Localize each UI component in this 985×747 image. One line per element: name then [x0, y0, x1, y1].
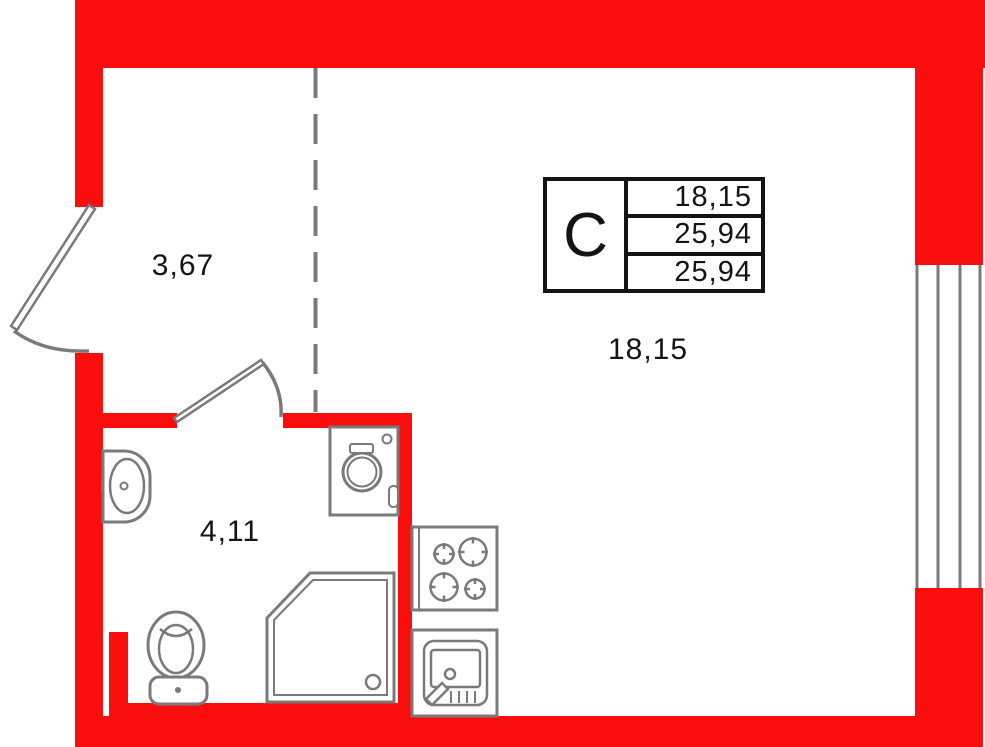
stamp-living-area: 18,15: [628, 181, 761, 218]
room-label-hallway: 3,67: [152, 249, 214, 283]
stamp-section-letter: C: [547, 181, 628, 289]
floor-plan: 3,67 18,15 4,11 C 18,15 25,94 25,94: [0, 0, 985, 747]
wall-duct: [109, 632, 128, 703]
fixtures-layer: [0, 0, 985, 747]
wall-bathroom-bottom: [109, 703, 412, 716]
kitchen-sink-icon: [412, 630, 497, 716]
shower-icon: [267, 573, 394, 702]
bathroom-sink-icon: [102, 451, 150, 522]
toilet-icon: [148, 612, 207, 704]
stamp-values-column: 18,15 25,94 25,94: [628, 181, 761, 289]
area-stamp: C 18,15 25,94 25,94: [543, 177, 765, 293]
room-label-living-kitchen: 18,15: [608, 333, 688, 367]
stamp-overall-area: 25,94: [628, 256, 761, 289]
wall-bathroom-top-left: [103, 413, 177, 428]
stove-icon: [412, 527, 497, 610]
wall-bottom: [75, 716, 983, 747]
wall-left-upper: [75, 0, 103, 207]
wall-bathroom-top-right: [283, 413, 412, 428]
wall-top: [75, 0, 985, 68]
window-icon: [917, 265, 980, 588]
washing-machine-icon: [330, 427, 398, 515]
interior-door-icon: [174, 360, 281, 422]
room-label-bathroom: 4,11: [200, 515, 260, 549]
wall-right-upper: [915, 0, 983, 265]
entrance-door-icon: [11, 205, 95, 351]
stamp-total-area: 25,94: [628, 218, 761, 255]
wall-bathroom-right: [398, 413, 412, 716]
wall-left-lower: [75, 353, 103, 747]
